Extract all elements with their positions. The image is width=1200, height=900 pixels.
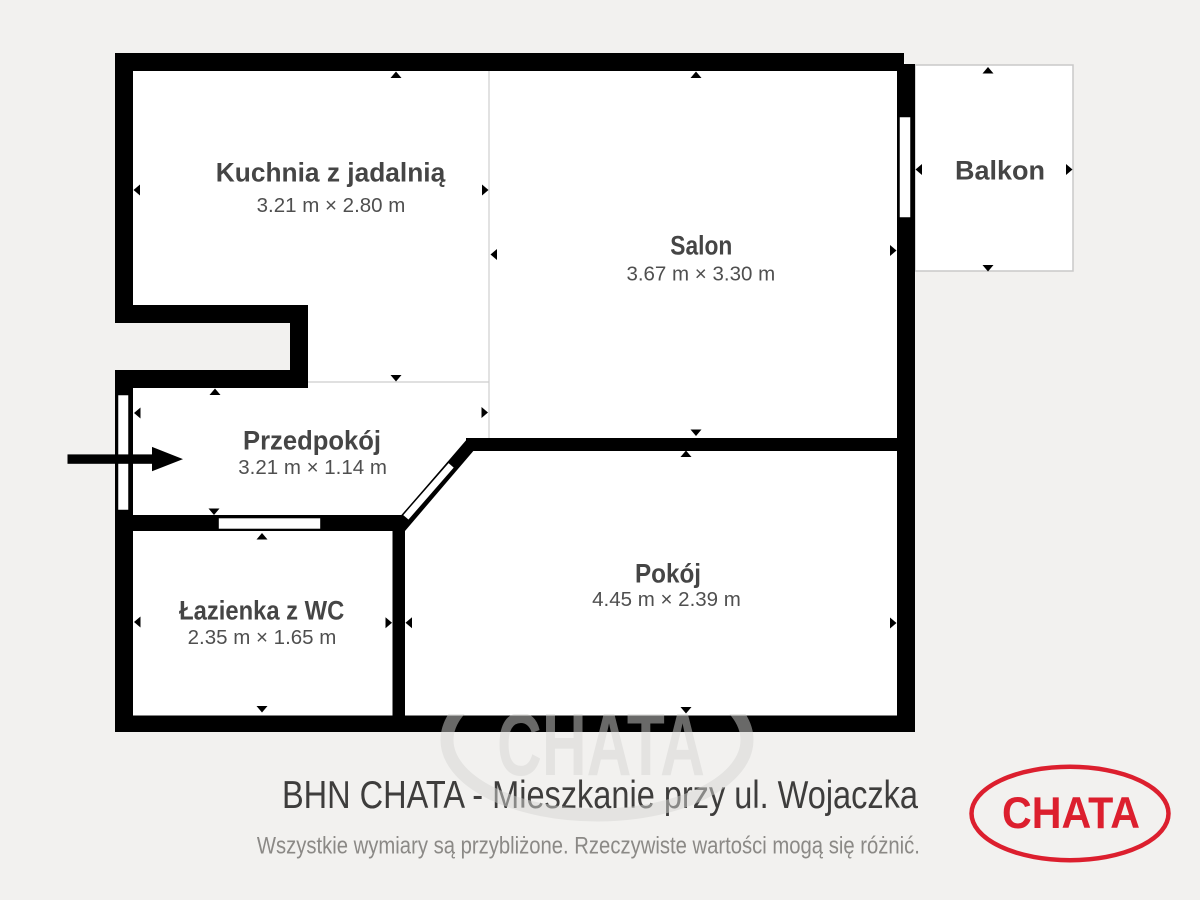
svg-text:CHATA: CHATA	[1002, 789, 1140, 838]
svg-text:Pokój: Pokój	[635, 558, 701, 588]
svg-text:2.35 m × 1.65 m: 2.35 m × 1.65 m	[188, 626, 337, 649]
svg-text:Balkon: Balkon	[955, 155, 1045, 185]
svg-text:Kuchnia z jadalnią: Kuchnia z jadalnią	[216, 158, 446, 188]
svg-text:Przedpokój: Przedpokój	[243, 425, 381, 455]
svg-text:Łazienka z WC: Łazienka z WC	[179, 596, 344, 626]
svg-text:4.45 m × 2.39 m: 4.45 m × 2.39 m	[592, 588, 741, 611]
svg-text:3.67 m × 3.30 m: 3.67 m × 3.30 m	[626, 263, 775, 286]
svg-text:3.21 m × 1.14 m: 3.21 m × 1.14 m	[238, 456, 387, 479]
svg-text:3.21 m × 2.80 m: 3.21 m × 2.80 m	[257, 194, 406, 217]
svg-text:Wszystkie wymiary są przybliżo: Wszystkie wymiary są przybliżone. Rzeczy…	[257, 832, 920, 859]
svg-text:Salon: Salon	[670, 231, 732, 261]
